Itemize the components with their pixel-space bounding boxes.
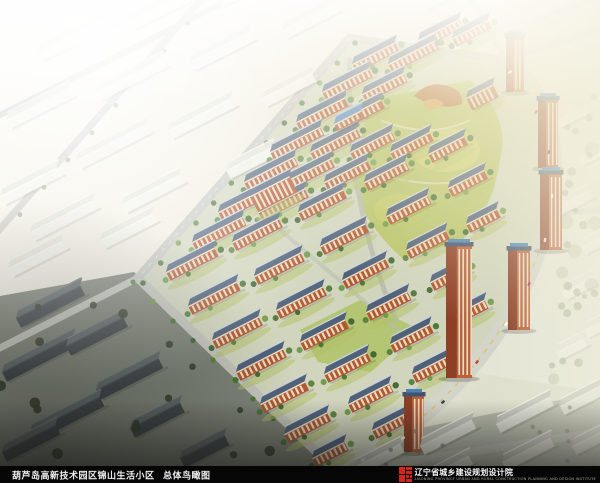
drawing-title: 总体鸟瞰图 bbox=[163, 468, 211, 481]
logo-institute-name: 辽宁省城乡建设规划设计院 bbox=[415, 468, 513, 477]
design-institute-logo: 辽宁省城乡建设规划设计院 LIAONING PROVINCE URBAN AND… bbox=[399, 467, 596, 482]
haze-overlays bbox=[0, 0, 600, 483]
project-title: 葫芦岛高新技术园区锦山生活小区 bbox=[12, 468, 155, 481]
logo-institute-subtitle: LIAONING PROVINCE URBAN AND RURAL CONSTR… bbox=[415, 477, 596, 482]
rendering-page: 葫芦岛高新技术园区锦山生活小区 总体鸟瞰图 辽宁省城乡建设规划设计院 LIAON… bbox=[0, 0, 600, 483]
caption-bar: 葫芦岛高新技术园区锦山生活小区 总体鸟瞰图 辽宁省城乡建设规划设计院 LIAON… bbox=[0, 466, 600, 483]
aerial-rendering bbox=[0, 0, 600, 483]
logo-mark-icon bbox=[399, 467, 412, 482]
